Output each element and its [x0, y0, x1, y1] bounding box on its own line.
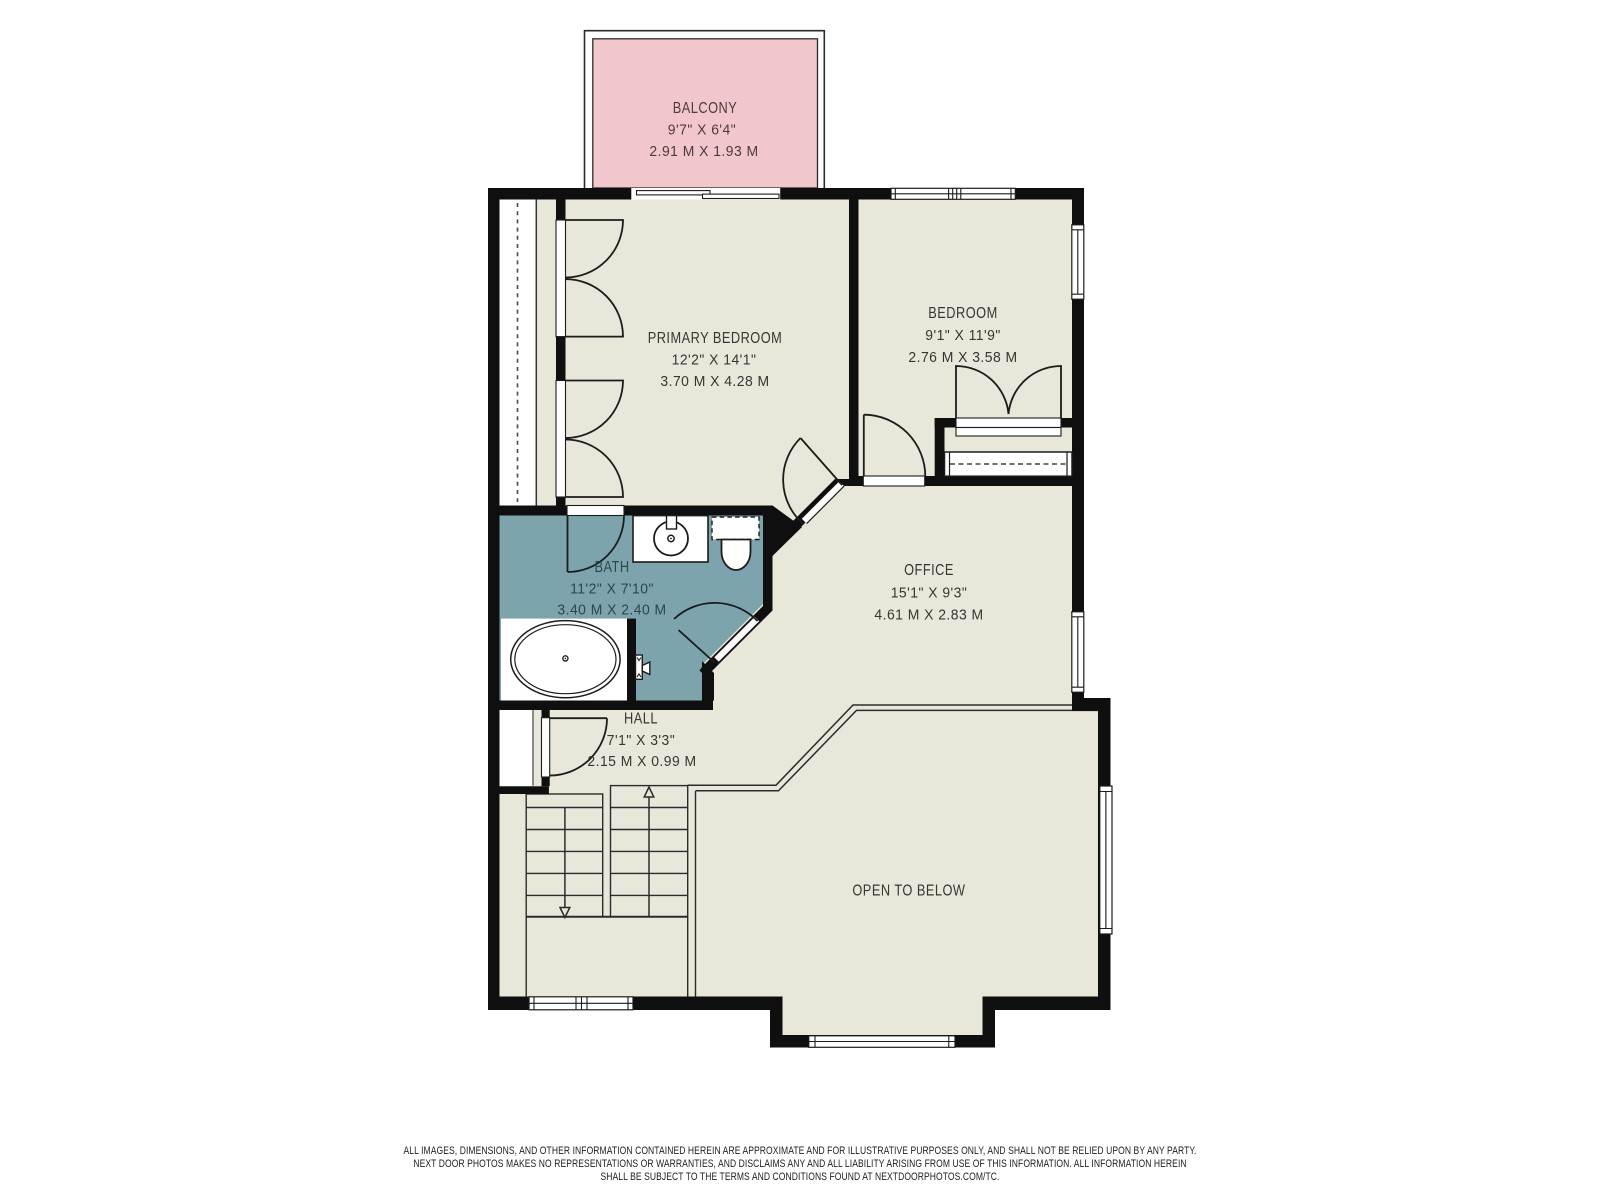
- svg-text:HALL: HALL: [624, 710, 658, 728]
- svg-text:PRIMARY BEDROOM: PRIMARY BEDROOM: [648, 330, 783, 348]
- svg-text:7'1" X 3'3": 7'1" X 3'3": [607, 733, 675, 750]
- svg-text:BALCONY: BALCONY: [673, 100, 737, 118]
- svg-text:9'7" X 6'4": 9'7" X 6'4": [668, 122, 736, 139]
- svg-text:2.76 M X 3.58 M: 2.76 M X 3.58 M: [908, 350, 1017, 367]
- svg-text:2.91 M X 1.93 M: 2.91 M X 1.93 M: [649, 144, 758, 161]
- svg-text:12'2" X 14'1": 12'2" X 14'1": [672, 352, 757, 369]
- svg-text:SHALL BE SUBJECT TO THE TERMS: SHALL BE SUBJECT TO THE TERMS AND CONDIT…: [600, 1171, 999, 1183]
- svg-text:3.40 M X 2.40 M: 3.40 M X 2.40 M: [557, 602, 666, 619]
- svg-text:3.70 M X 4.28 M: 3.70 M X 4.28 M: [660, 374, 769, 391]
- svg-text:OPEN TO BELOW: OPEN TO BELOW: [852, 882, 965, 900]
- svg-text:ALL IMAGES, DIMENSIONS, AND OT: ALL IMAGES, DIMENSIONS, AND OTHER INFORM…: [404, 1145, 1197, 1157]
- svg-text:15'1" X 9'3": 15'1" X 9'3": [891, 585, 968, 602]
- svg-text:9'1" X 11'9": 9'1" X 11'9": [925, 328, 1001, 345]
- svg-text:BATH: BATH: [594, 559, 629, 577]
- svg-text:11'2" X 7'10": 11'2" X 7'10": [570, 581, 654, 598]
- svg-text:2.15 M X 0.99 M: 2.15 M X 0.99 M: [587, 754, 696, 771]
- svg-text:BEDROOM: BEDROOM: [928, 305, 997, 323]
- svg-text:NEXT DOOR PHOTOS MAKES NO REPR: NEXT DOOR PHOTOS MAKES NO REPRESENTATION…: [413, 1158, 1186, 1170]
- svg-text:4.61 M X 2.83 M: 4.61 M X 2.83 M: [874, 607, 983, 624]
- svg-text:OFFICE: OFFICE: [904, 562, 954, 580]
